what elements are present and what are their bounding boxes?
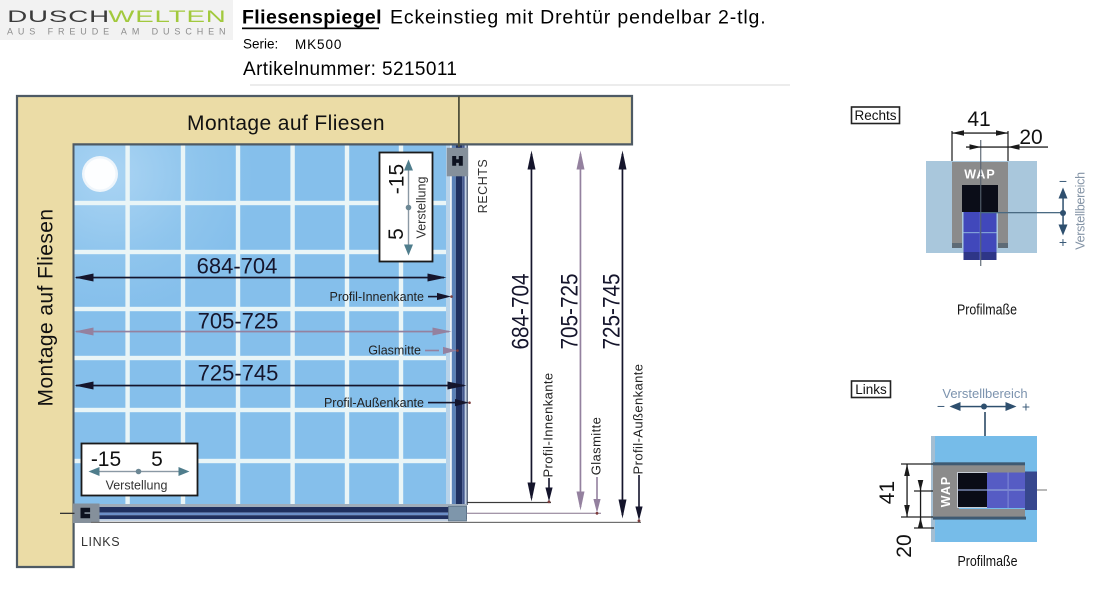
svg-text:5: 5 <box>151 448 163 471</box>
svg-text:684-704: 684-704 <box>508 274 535 350</box>
svg-text:5: 5 <box>385 228 408 240</box>
svg-text:Glasmitte: Glasmitte <box>368 344 421 358</box>
svg-text:RECHTS: RECHTS <box>476 159 490 213</box>
svg-text:Profilmaße: Profilmaße <box>958 553 1018 570</box>
svg-text:725-745: 725-745 <box>198 361 279 386</box>
svg-text:Eckeinstieg mit Drehtür pendel: Eckeinstieg mit Drehtür pendelbar 2-tlg. <box>390 7 767 29</box>
svg-text:LINKS: LINKS <box>81 535 120 549</box>
svg-text:Profil-Außenkante: Profil-Außenkante <box>324 396 424 410</box>
svg-text:Rechts: Rechts <box>854 108 896 123</box>
svg-text:-15: -15 <box>91 448 121 471</box>
svg-text:Montage auf Fliesen: Montage auf Fliesen <box>187 112 385 135</box>
svg-text:AUS FREUDE AM DUSCHEN: AUS FREUDE AM DUSCHEN <box>7 27 230 37</box>
svg-text:Verstellung: Verstellung <box>415 177 429 239</box>
svg-text:20: 20 <box>1019 126 1042 149</box>
svg-text:705-725: 705-725 <box>198 309 279 334</box>
svg-text:Profilmaße: Profilmaße <box>957 302 1017 319</box>
svg-text:20: 20 <box>893 534 916 557</box>
svg-text:Links: Links <box>855 382 887 397</box>
svg-text:−: − <box>937 398 945 414</box>
svg-text:Serie:: Serie: <box>243 37 278 52</box>
svg-text:705-725: 705-725 <box>557 274 584 350</box>
svg-text:WAP: WAP <box>939 476 953 507</box>
svg-text:Profil-Innenkante: Profil-Innenkante <box>541 372 556 477</box>
svg-text:Profil-Außenkante: Profil-Außenkante <box>631 364 646 475</box>
svg-text:Fliesenspiegel: Fliesenspiegel <box>242 7 382 29</box>
svg-text:Verstellbereich: Verstellbereich <box>942 386 1027 401</box>
svg-text:41: 41 <box>876 481 899 504</box>
svg-text:Verstellung: Verstellung <box>106 479 168 493</box>
svg-text:Profil-Innenkante: Profil-Innenkante <box>329 290 424 304</box>
svg-text:DUSCHWELTEN: DUSCHWELTEN <box>7 7 226 26</box>
svg-text:Artikelnummer: 5215011: Artikelnummer: 5215011 <box>243 59 457 80</box>
svg-text:+: + <box>1022 399 1030 415</box>
svg-text:+: + <box>1059 234 1067 250</box>
svg-text:−: − <box>1059 173 1067 189</box>
svg-text:Verstellbereich: Verstellbereich <box>1074 172 1088 250</box>
svg-text:41: 41 <box>967 108 990 131</box>
svg-text:684-704: 684-704 <box>197 254 278 279</box>
svg-text:Glasmitte: Glasmitte <box>589 417 604 476</box>
svg-text:725-745: 725-745 <box>599 274 626 350</box>
svg-text:WAP: WAP <box>964 168 995 182</box>
svg-text:Montage auf Fliesen: Montage auf Fliesen <box>35 209 58 407</box>
svg-text:MK500: MK500 <box>295 37 342 52</box>
